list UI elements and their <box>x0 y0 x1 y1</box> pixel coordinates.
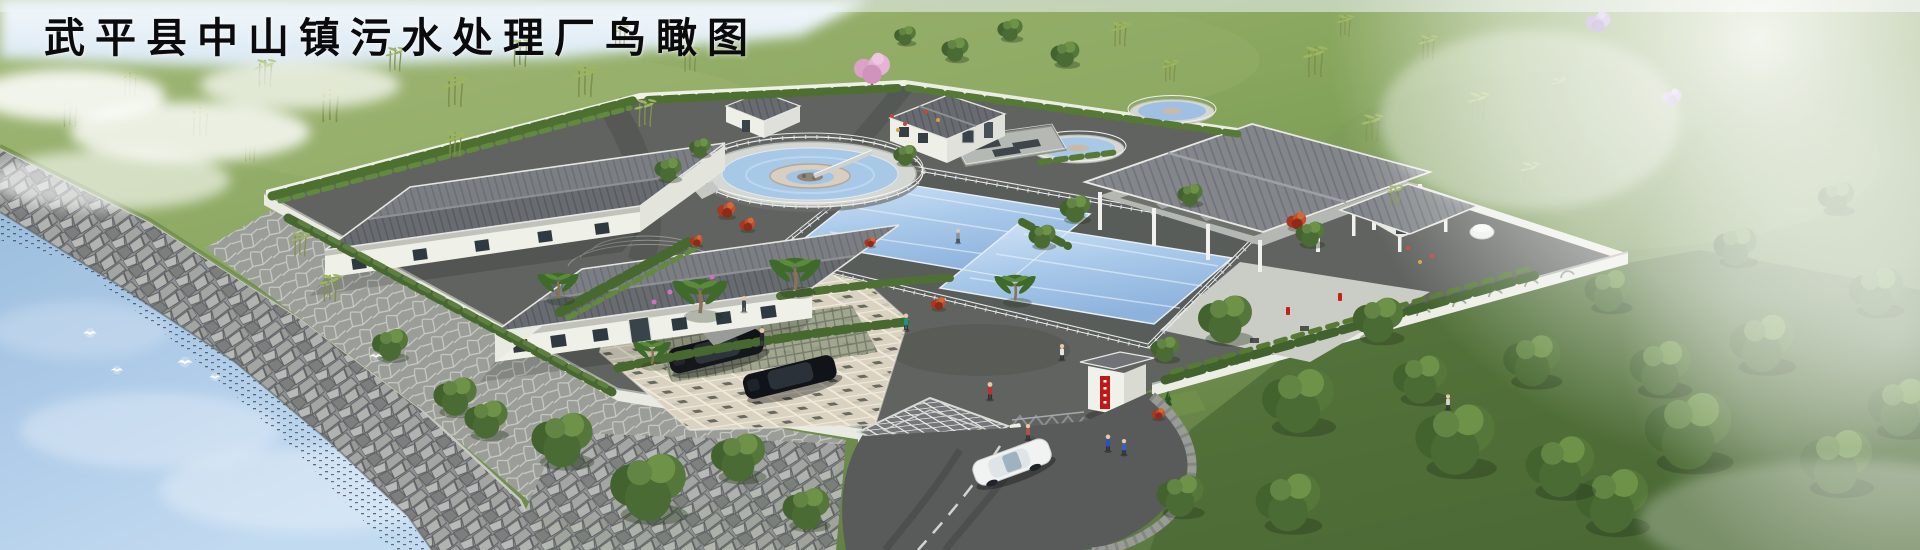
building-b-entrance <box>628 317 651 344</box>
gate-sign <box>1100 376 1110 409</box>
title-text: 武平县中山镇污水处理厂鸟瞰图 <box>44 4 1244 64</box>
rendering-canvas: 武平县中山镇污水处理厂鸟瞰图 <box>0 0 1920 550</box>
scene-svg <box>0 0 1920 550</box>
